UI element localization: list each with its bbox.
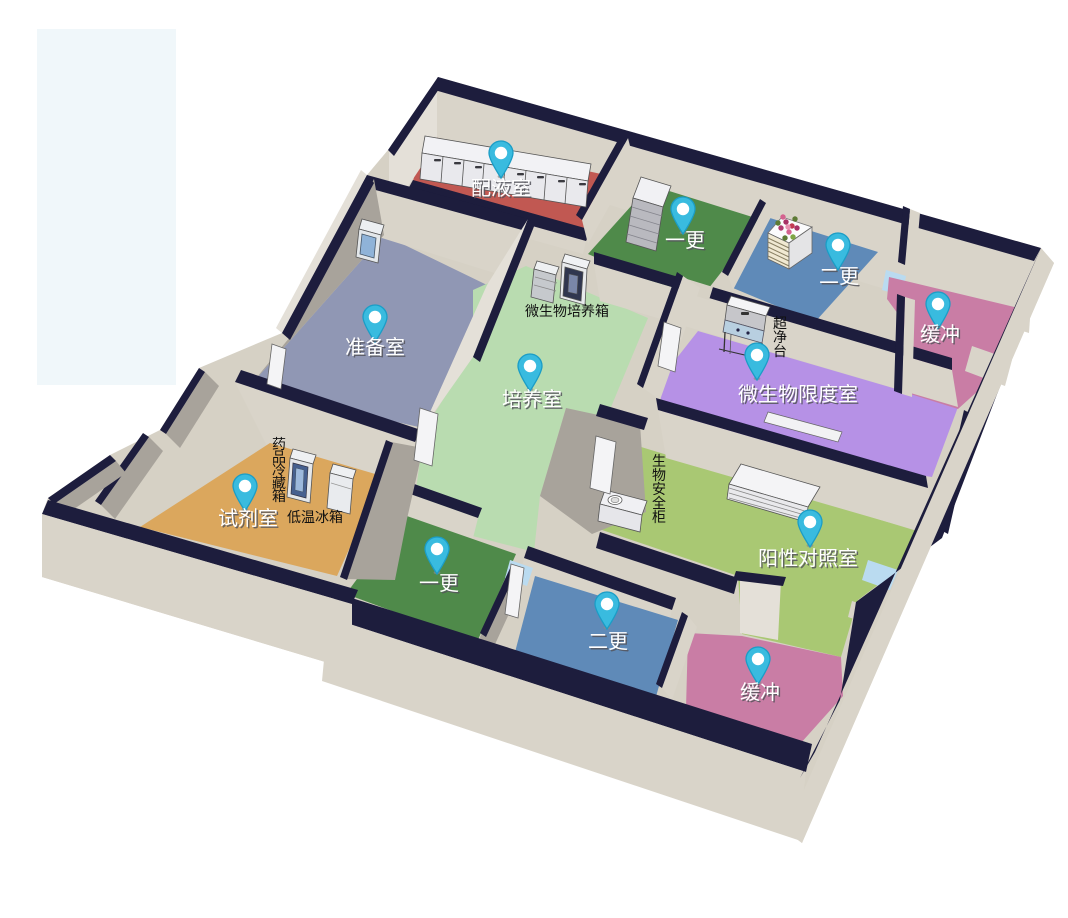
svg-text:一更: 一更 — [665, 230, 705, 252]
svg-text:全: 全 — [652, 495, 666, 512]
svg-text:超: 超 — [773, 316, 787, 332]
svg-text:箱: 箱 — [272, 489, 286, 505]
svg-text:微生物限度室: 微生物限度室 — [738, 383, 858, 406]
svg-text:生: 生 — [652, 454, 666, 470]
svg-text:阳性对照室: 阳性对照室 — [758, 547, 858, 570]
svg-text:物: 物 — [652, 468, 666, 484]
svg-text:安: 安 — [652, 482, 666, 498]
svg-text:低温冰箱: 低温冰箱 — [287, 510, 343, 526]
svg-text:二更: 二更 — [588, 631, 628, 653]
svg-text:缓冲: 缓冲 — [920, 323, 960, 346]
svg-text:二更: 二更 — [819, 266, 859, 288]
svg-text:培养室: 培养室 — [502, 388, 562, 411]
svg-text:配液室: 配液室 — [471, 177, 531, 200]
svg-text:净: 净 — [773, 330, 787, 346]
svg-text:一更: 一更 — [419, 573, 459, 595]
svg-text:柜: 柜 — [652, 510, 666, 526]
svg-text:试剂室: 试剂室 — [218, 507, 278, 530]
svg-text:缓冲: 缓冲 — [740, 681, 780, 704]
svg-text:台: 台 — [773, 344, 787, 360]
svg-text:准备室: 准备室 — [345, 336, 405, 359]
svg-text:微生物培养箱: 微生物培养箱 — [525, 304, 609, 320]
